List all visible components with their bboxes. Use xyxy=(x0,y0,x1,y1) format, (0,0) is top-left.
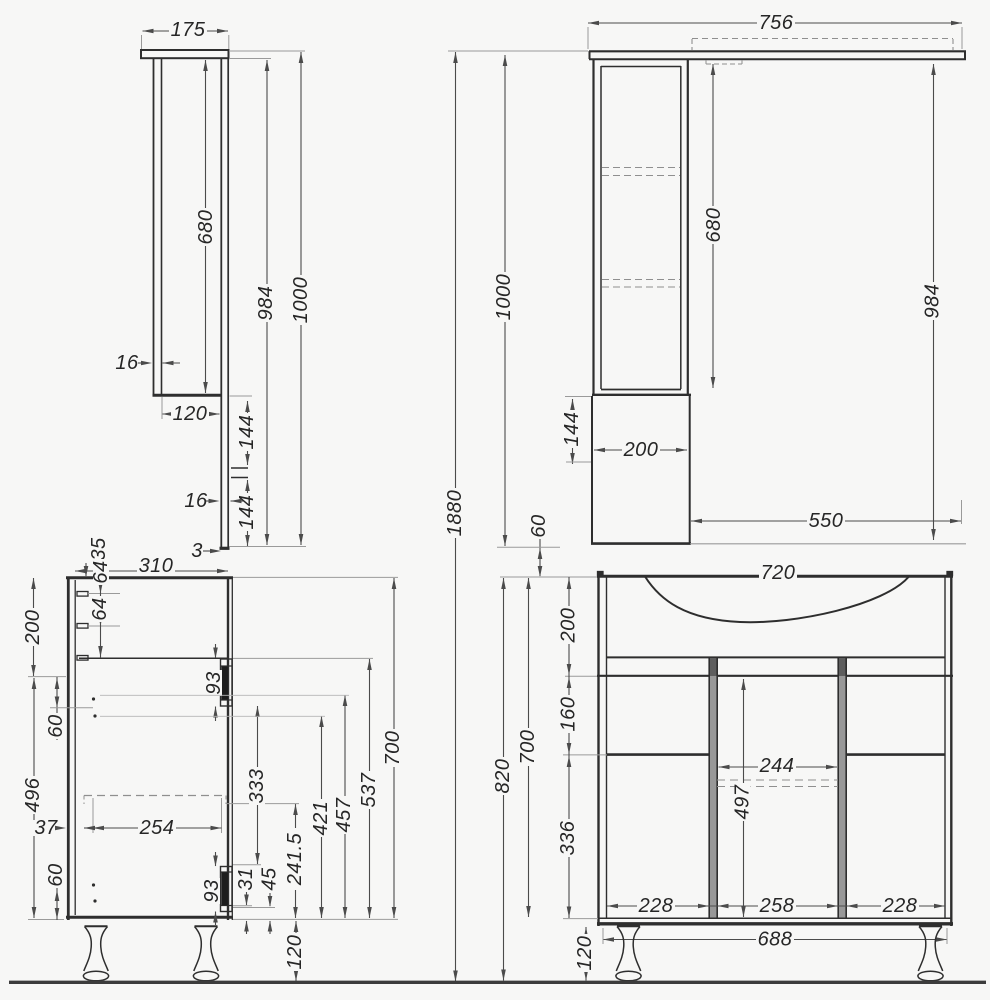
svg-text:93: 93 xyxy=(201,879,223,902)
svg-text:120: 120 xyxy=(574,936,596,971)
svg-text:680: 680 xyxy=(195,210,217,245)
svg-text:254: 254 xyxy=(139,817,175,839)
svg-text:310: 310 xyxy=(139,555,174,577)
svg-text:60: 60 xyxy=(45,714,67,737)
svg-text:37: 37 xyxy=(34,817,58,839)
svg-text:228: 228 xyxy=(882,895,918,917)
svg-text:333: 333 xyxy=(246,769,268,804)
svg-text:120: 120 xyxy=(173,403,208,425)
svg-text:1000: 1000 xyxy=(493,274,515,321)
svg-text:537: 537 xyxy=(358,772,380,807)
svg-text:336: 336 xyxy=(557,820,579,855)
svg-text:820: 820 xyxy=(492,759,514,794)
svg-text:984: 984 xyxy=(922,284,944,319)
svg-text:984: 984 xyxy=(255,286,277,321)
svg-text:35: 35 xyxy=(88,537,110,561)
svg-text:241.5: 241.5 xyxy=(284,832,306,886)
svg-text:175: 175 xyxy=(171,19,206,41)
svg-text:16: 16 xyxy=(115,352,139,374)
svg-text:258: 258 xyxy=(759,895,795,917)
svg-text:60: 60 xyxy=(528,514,550,537)
svg-text:244: 244 xyxy=(759,755,795,777)
svg-text:421: 421 xyxy=(310,801,332,836)
svg-text:200: 200 xyxy=(22,610,44,646)
svg-text:680: 680 xyxy=(703,208,725,243)
svg-text:144: 144 xyxy=(236,415,258,450)
svg-text:700: 700 xyxy=(517,730,539,765)
svg-text:756: 756 xyxy=(759,12,794,34)
svg-text:144: 144 xyxy=(561,412,583,447)
svg-text:16: 16 xyxy=(184,490,208,512)
svg-text:1880: 1880 xyxy=(444,490,466,537)
svg-text:550: 550 xyxy=(809,510,844,532)
svg-text:720: 720 xyxy=(761,562,796,584)
svg-text:497: 497 xyxy=(732,784,754,819)
svg-text:3: 3 xyxy=(191,540,203,562)
svg-text:1000: 1000 xyxy=(290,277,312,324)
svg-text:457: 457 xyxy=(333,797,355,832)
svg-text:496: 496 xyxy=(22,777,44,812)
svg-text:228: 228 xyxy=(638,895,674,917)
svg-text:93: 93 xyxy=(203,671,225,694)
svg-text:64: 64 xyxy=(90,560,112,583)
svg-text:160: 160 xyxy=(558,697,580,732)
svg-text:120: 120 xyxy=(284,935,306,970)
svg-text:200: 200 xyxy=(623,439,659,461)
svg-text:45: 45 xyxy=(259,867,281,891)
svg-text:64: 64 xyxy=(89,597,111,620)
svg-text:60: 60 xyxy=(45,863,67,886)
svg-text:31: 31 xyxy=(235,867,257,890)
svg-text:688: 688 xyxy=(758,929,793,951)
svg-text:700: 700 xyxy=(382,731,404,766)
svg-text:200: 200 xyxy=(558,608,580,644)
